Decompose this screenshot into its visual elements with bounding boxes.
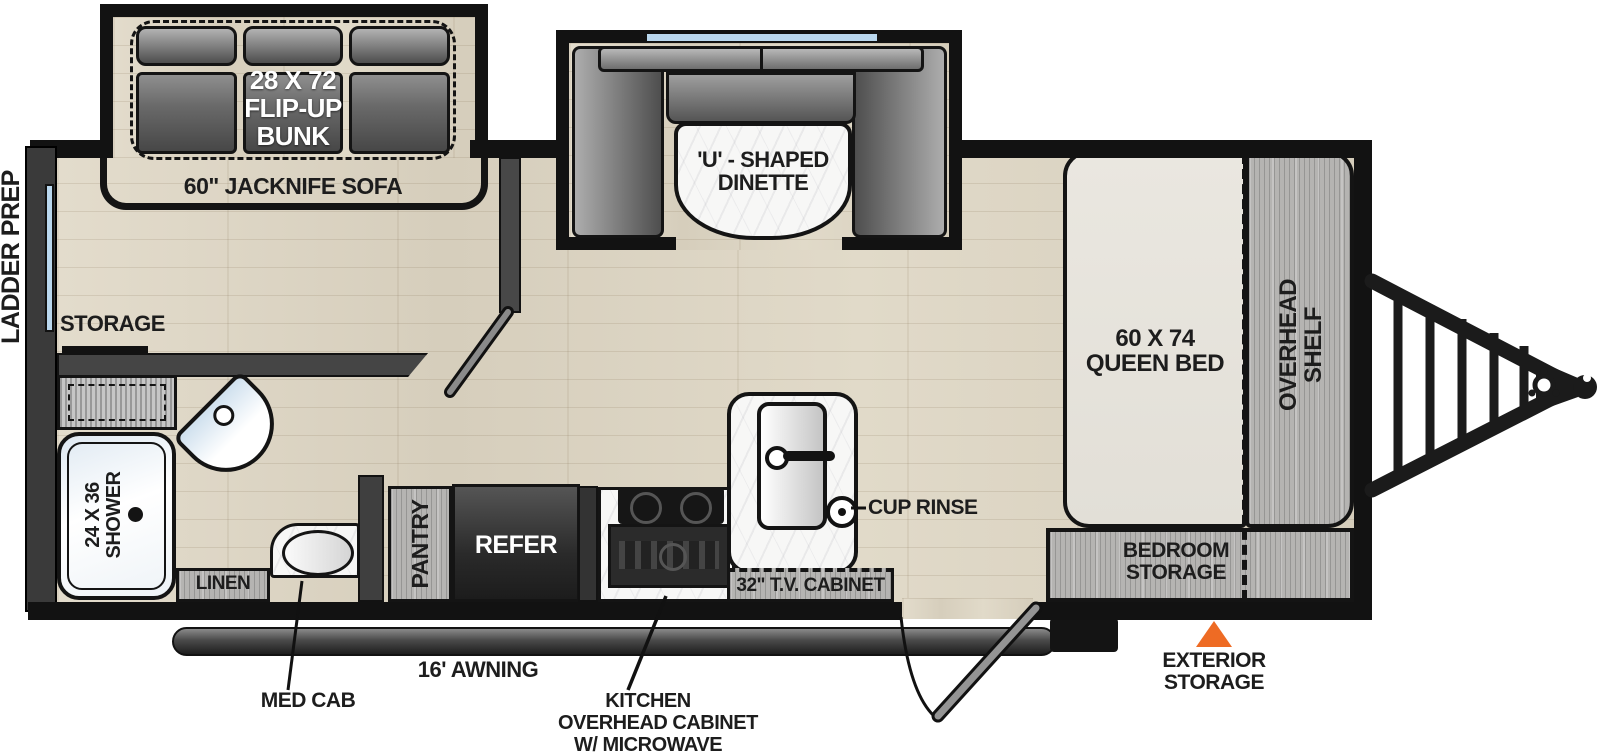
- front-wall: [1354, 146, 1372, 612]
- stove-cooktop: [618, 487, 724, 524]
- ladder-prep-label: LADDER PREP: [0, 170, 24, 344]
- dinette-bench-left: [572, 46, 664, 238]
- bed-shelf-dashed-divider: [1242, 154, 1247, 600]
- top-wall-middle: [470, 140, 562, 158]
- entry-door-leaf: [938, 608, 1036, 716]
- coupler-ball: [1573, 375, 1597, 399]
- cup-rinse-fixture: [826, 496, 858, 528]
- awning-label: 16' AWNING: [398, 658, 558, 681]
- wardrobe-dashed-door: [68, 384, 166, 421]
- entry-step: [1050, 618, 1118, 652]
- oven-range: [608, 524, 730, 588]
- exterior-storage-marker: [1196, 621, 1232, 647]
- dinette-window: [645, 32, 879, 43]
- top-wall-right: [956, 140, 1372, 158]
- bedroom-storage-label: BEDROOM STORAGE: [1046, 540, 1306, 584]
- awning-bar: [172, 627, 1056, 656]
- storage-counter-edge: [62, 346, 148, 355]
- linen-label: LINEN: [176, 574, 270, 594]
- exterior-storage-label: EXTERIOR STORAGE: [1154, 650, 1274, 694]
- vanity-sink: [282, 530, 354, 576]
- tongue-jack: [1535, 376, 1553, 394]
- dinette-bench-back: [598, 46, 924, 72]
- queen-bed-label: 60 X 74 QUEEN BED: [1063, 326, 1247, 376]
- bottom-wall-right: [1033, 602, 1372, 620]
- stove-burner: [630, 492, 662, 524]
- dinette-bench-right: [852, 46, 947, 238]
- cup-rinse-center: [838, 508, 846, 516]
- tv-cabinet-label: 32" T.V. CABINET: [727, 576, 894, 596]
- faucet-arm: [783, 451, 835, 461]
- coupler-wedge: [1536, 360, 1578, 412]
- refer-label: REFER: [452, 532, 580, 558]
- bath-wardrobe-cabinet: [57, 375, 177, 430]
- overhead-shelf-label: OVERHEAD SHELF: [1276, 279, 1326, 411]
- dinette-bench-back-seat: [666, 72, 856, 124]
- bottom-wall-left: [28, 602, 902, 620]
- bath-kitchen-wall: [358, 475, 384, 602]
- pantry-label: PANTRY: [408, 500, 432, 589]
- cup-rinse-label: CUP RINSE: [868, 497, 977, 519]
- flip-up-bunk-label: 28 X 72 FLIP-UP BUNK: [130, 66, 456, 150]
- rear-window: [45, 184, 54, 332]
- kitchen-overhead-label: KITCHEN OVERHEAD CABINET W/ MICROWAVE: [558, 690, 738, 755]
- floorplan-canvas: 28 X 72 FLIP-UP BUNK 60" JACKNIFE SOFA '…: [0, 0, 1600, 755]
- shower-drain: [128, 507, 143, 522]
- med-cab-label: MED CAB: [248, 690, 368, 712]
- entry-door-opening-floor: [902, 598, 1033, 619]
- hitch-assembly: [1372, 281, 1597, 490]
- refer-side-panel: [578, 486, 598, 602]
- storage-label: STORAGE: [60, 312, 165, 335]
- dinette-box-bottom-right: [842, 237, 962, 250]
- toilet-flush-button: [209, 401, 239, 431]
- dinette-box-bottom-left: [556, 237, 676, 250]
- shower-label: 24 X 36 SHOWER: [83, 472, 125, 559]
- bath-door-wall: [499, 157, 521, 313]
- stove-burner: [680, 492, 712, 524]
- range-burner: [659, 543, 687, 571]
- jacknife-sofa-label: 60" JACKNIFE SOFA: [123, 174, 463, 198]
- dinette-label: 'U' - SHAPED DINETTE: [674, 148, 852, 194]
